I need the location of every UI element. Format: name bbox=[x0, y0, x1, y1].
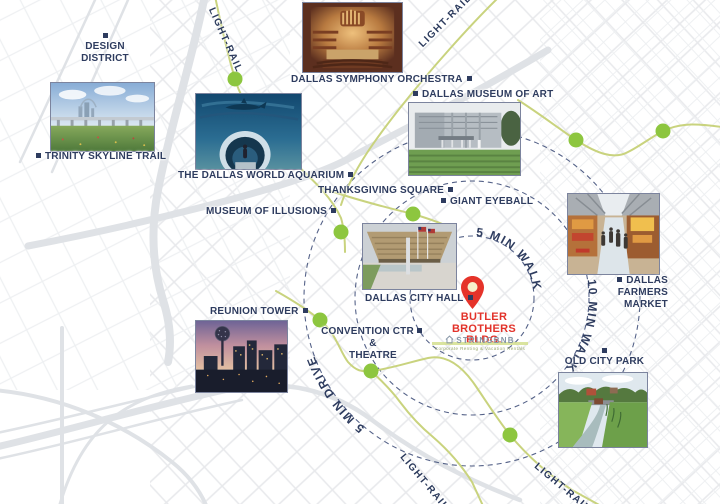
location-square-marker bbox=[36, 153, 41, 158]
location-square-marker bbox=[417, 328, 422, 333]
location-square-marker bbox=[303, 308, 308, 313]
old-city-park-photo bbox=[558, 372, 648, 448]
location-square-marker bbox=[331, 208, 336, 213]
poi-label-dallas-symphony-orchestra: DALLAS SYMPHONY ORCHESTRA bbox=[291, 74, 472, 86]
dallas-area-map: 5 MIN WALK 10 MIN WALK 5 MIN DRIVE bbox=[0, 0, 720, 504]
logo-name-text: STRINGBNB bbox=[456, 336, 514, 345]
poi-label-dallas-museum-of-art: DALLAS MUSEUM OF ART bbox=[413, 89, 553, 101]
location-square-marker bbox=[441, 198, 446, 203]
rail-station-dot bbox=[364, 364, 379, 379]
poi-label-trinity-skyline-trail: TRINITY SKYLINE TRAIL bbox=[36, 151, 166, 163]
location-square-marker bbox=[448, 187, 453, 192]
location-square-marker bbox=[103, 33, 108, 38]
poi-label-reunion-tower: REUNION TOWER bbox=[210, 306, 308, 318]
poi-label-giant-eyeball: GIANT EYEBALL bbox=[441, 196, 533, 208]
poi-label-museum-of-illusions: MUSEUM OF ILLUSIONS bbox=[206, 206, 336, 218]
dallas-farmers-market-photo bbox=[567, 193, 660, 275]
poi-label-dallas-farmers-market: DALLAS FARMERS MARKET bbox=[568, 275, 668, 311]
location-square-marker bbox=[468, 295, 473, 300]
rail-station-dot bbox=[569, 133, 584, 148]
trinity-skyline-trail-photo bbox=[50, 82, 155, 152]
dallas-city-hall-photo bbox=[362, 223, 457, 290]
location-square-marker bbox=[467, 76, 472, 81]
poi-label-dallas-city-hall: DALLAS CITY HALL bbox=[365, 293, 473, 305]
logo-tagline: Corporate Renting & Vacation Rentals bbox=[432, 346, 528, 351]
rail-station-dot bbox=[503, 428, 518, 443]
location-square-marker bbox=[348, 172, 353, 177]
house-icon bbox=[445, 335, 454, 344]
dallas-symphony-orchestra-photo bbox=[302, 2, 403, 73]
dallas-world-aquarium-photo bbox=[195, 93, 302, 170]
reunion-tower-photo bbox=[195, 320, 288, 393]
poi-label-old-city-park: OLD CITY PARK bbox=[562, 348, 647, 368]
location-square-marker bbox=[413, 91, 418, 96]
dallas-museum-of-art-photo bbox=[408, 102, 521, 176]
poi-label-convention-ctr-theatre: CONVENTION CTR& THEATRE bbox=[320, 326, 426, 362]
poi-label-dallas-world-aquarium: THE DALLAS WORLD AQUARIUM bbox=[178, 170, 353, 182]
rail-station-dot bbox=[334, 225, 349, 240]
rail-station-dot bbox=[406, 207, 421, 222]
location-square-marker bbox=[617, 277, 622, 282]
location-square-marker bbox=[602, 348, 607, 353]
poi-label-thanksgiving-square: THANKSGIVING SQUARE bbox=[318, 185, 453, 197]
stringbnb-logo: STRINGBNB Corporate Renting & Vacation R… bbox=[432, 335, 528, 351]
poi-label-design-district: DESIGN DISTRICT bbox=[60, 33, 150, 65]
rail-station-dot bbox=[656, 124, 671, 139]
